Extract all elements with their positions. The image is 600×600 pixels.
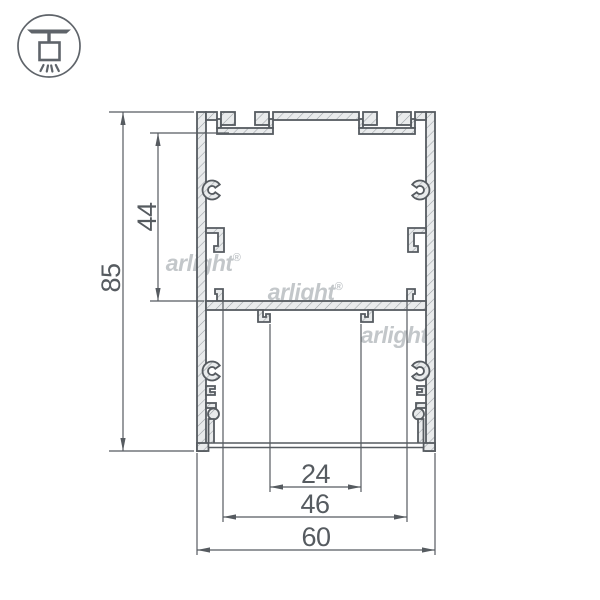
drawing-canvas: arlight® arlight® arlight®	[0, 0, 600, 600]
dim-label-24: 24	[301, 459, 331, 489]
screw-boss-upper-left	[203, 181, 220, 200]
bottom-stem-left	[206, 403, 216, 408]
arrow-left-icon	[223, 514, 236, 519]
dim-label-85: 85	[96, 263, 126, 292]
arrow-up-icon	[120, 112, 125, 125]
top-wall-right	[415, 112, 426, 120]
partition-tab-left	[215, 289, 223, 301]
bottom-knob-left	[208, 409, 219, 420]
notch-stub-right	[417, 386, 426, 395]
ceiling-bar	[27, 30, 71, 34]
bottom-knob-right	[413, 409, 424, 420]
bottom-lip-right	[418, 419, 424, 444]
screw-boss-lower-left	[203, 362, 220, 381]
right-outer-wall	[426, 112, 435, 451]
arrow-up-icon	[155, 133, 160, 146]
dimension-hook-span: 24	[270, 324, 361, 492]
slot-tab	[221, 112, 235, 125]
arrow-right-icon	[394, 514, 407, 519]
diffuser-floor	[209, 443, 424, 448]
wall-hook-right	[408, 228, 426, 252]
dim-label-60: 60	[301, 522, 330, 552]
bottom-lip-left	[209, 419, 215, 444]
screw-boss-upper-right	[412, 181, 429, 200]
top-wall-left	[206, 112, 217, 120]
bottom-foot-right	[424, 443, 436, 451]
left-outer-wall	[197, 112, 206, 451]
wall-hook-left	[206, 228, 224, 252]
slot-tab	[397, 112, 411, 125]
arrow-down-icon	[155, 288, 160, 301]
notch-stub-left	[206, 386, 215, 395]
diffuser-hook-right	[361, 310, 373, 322]
slot-floor-right	[359, 128, 415, 134]
lamp-box	[40, 43, 60, 61]
arrow-left-icon	[270, 484, 283, 489]
bottom-foot-left	[197, 443, 209, 451]
top-wall-middle	[273, 112, 359, 120]
dim-label-46: 46	[300, 489, 329, 519]
screw-boss-lower-right	[412, 362, 429, 381]
lamp-stem	[47, 33, 50, 43]
arrow-right-icon	[348, 484, 361, 489]
bottom-stem-right	[416, 403, 426, 408]
dim-label-44: 44	[132, 202, 162, 232]
slot-tab	[255, 112, 269, 125]
middle-partition	[206, 301, 426, 310]
dimension-total-height: 85	[96, 112, 194, 451]
arrow-right-icon	[422, 547, 435, 552]
slot-tab	[363, 112, 377, 125]
light-fixture-badge	[18, 15, 80, 77]
partition-tab-right	[407, 289, 415, 301]
profile-drawing-svg: arlight® arlight® arlight®	[0, 0, 600, 600]
diffuser-hook-left	[258, 310, 270, 322]
arrow-left-icon	[197, 547, 210, 552]
arrow-down-icon	[120, 438, 125, 451]
